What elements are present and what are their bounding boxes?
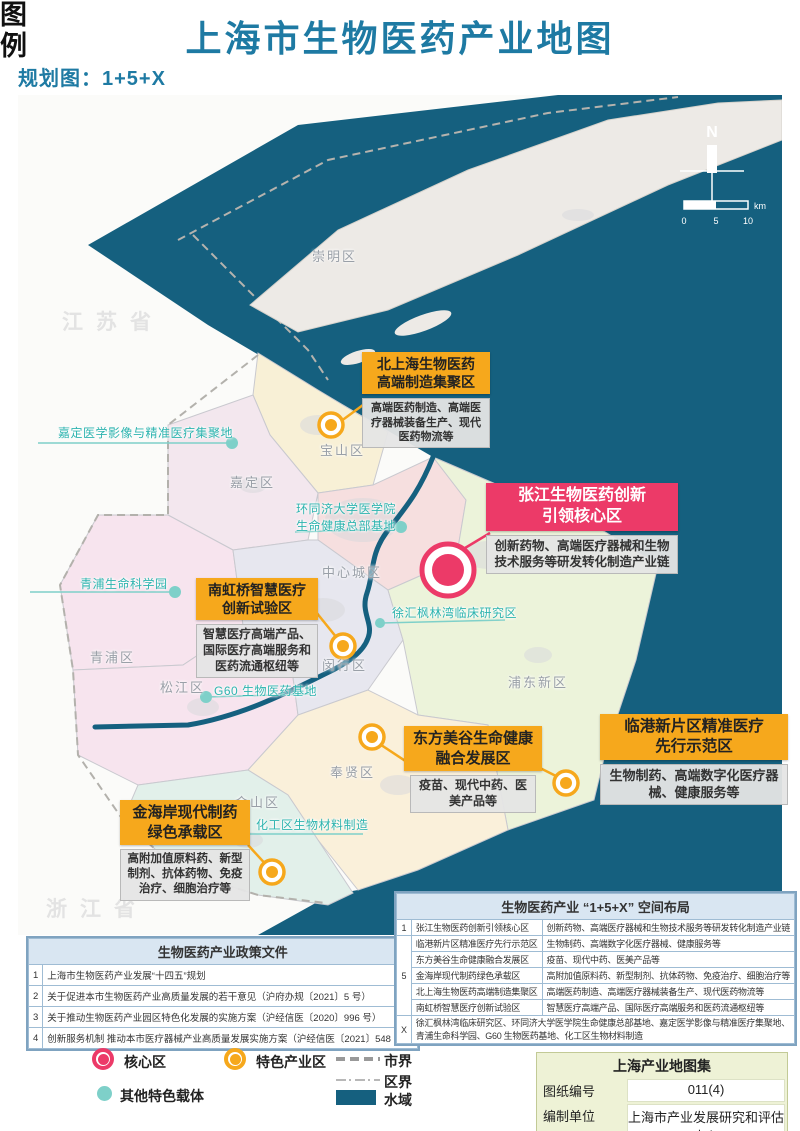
callout-lingang: 临港新片区精准医疗先行示范区 生物制药、高端数字化医疗器械、健康服务等 [600, 714, 788, 805]
district-label-chongming: 崇明区 [312, 246, 357, 265]
callout-beishanghai-title: 北上海生物医药高端制造集聚区 [362, 352, 490, 394]
legend-water-label: 水域 [384, 1090, 412, 1110]
callout-dongfangmeigu-title: 东方美谷生命健康融合发展区 [404, 726, 542, 771]
callout-beishanghai-desc: 高端医药制造、高端医疗器械装备生产、现代医药物流等 [362, 398, 490, 448]
table-row: 南虹桥智慧医疗创新试验区智慧医疗高端产品、国际医疗高端服务和医药流通枢纽等 [397, 1000, 795, 1016]
marker-feature-dongfangmeigu [360, 725, 384, 749]
callout-nanhongqiao-desc: 智慧医疗高端产品、国际医疗高端服务和医药流通枢纽等 [196, 624, 318, 677]
svg-text:N: N [706, 124, 718, 141]
atlas-title: 上海产业地图集 [537, 1053, 787, 1079]
table-row: 5 临港新片区精准医疗先行示范区 生物制药、高端数字化医疗器械、健康服务等 [397, 936, 795, 952]
carrier-label-xuhui-fenglinwan: 徐汇枫林湾临床研究区 [392, 604, 517, 621]
policy-table-title: 生物医药产业政策文件 [29, 939, 418, 965]
marker-core-zhangjiang [422, 544, 474, 596]
table-row: 1上海市生物医药产业发展“十四五”规划 [29, 965, 418, 986]
table-row: 北上海生物医药高端制造集聚区高端医药制造、高端医疗器械装备生产、现代医药物流等 [397, 984, 795, 1000]
page-title: 上海市生物医药产业地图 [0, 10, 800, 62]
svg-text:10: 10 [743, 216, 753, 226]
table-row: 4创新服务机制 推动本市医疗器械产业高质量发展实施方案（沪经信医〔2021〕54… [29, 1028, 418, 1049]
carrier-label-jiading-imaging: 嘉定医学影像与精准医疗集聚地 [58, 424, 233, 441]
table-row: X 徐汇枫林湾临床研究区、环同济大学医学院生命健康总部基地、嘉定医学影像与精准医… [397, 1016, 795, 1044]
legend-feature-icon [224, 1048, 246, 1070]
legend-other-icon [97, 1086, 112, 1101]
svg-text:5: 5 [713, 216, 718, 226]
plan-subtitle: 规划图：1+5+X [18, 62, 166, 91]
callout-jinhaian: 金海岸现代制药绿色承载区 高附加值原料药、新型制剂、抗体药物、免疫治疗、细胞治疗… [120, 800, 250, 901]
legend-district-border-label: 区界 [384, 1072, 412, 1092]
table-row: 东方美谷生命健康融合发展区疫苗、现代中药、医美产品等 [397, 952, 795, 968]
callout-zhangjiang-desc: 创新药物、高端医疗器械和生物技术服务等研发转化制造产业链 [486, 535, 678, 574]
dot-tongji [395, 521, 407, 533]
legend-feature-label: 特色产业区 [256, 1052, 326, 1072]
layout-table: 生物医药产业 “1+5+X” 空间布局 1 张江生物医药创新引领核心区 创新药物… [396, 893, 795, 1044]
svg-text:0: 0 [681, 216, 686, 226]
atlas-row-number: 图纸编号 011(4) [539, 1079, 785, 1102]
legend-core-icon [92, 1048, 114, 1070]
marker-feature-jinhaian [260, 860, 284, 884]
marker-feature-beishanghai [319, 413, 343, 437]
legend-other-label: 其他特色载体 [120, 1086, 204, 1106]
district-label-central-city: 中心城区 [322, 562, 382, 581]
callout-zhangjiang-title: 张江生物医药创新引领核心区 [486, 483, 678, 531]
legend-water-icon [336, 1090, 376, 1105]
callout-jinhaian-title: 金海岸现代制药绿色承载区 [120, 800, 250, 845]
marker-feature-lingang [554, 771, 578, 795]
dot-qingpu-lifescience [169, 586, 181, 598]
atlas-info-box: 上海产业地图集 图纸编号 011(4) 编制单位 上海市产业发展研究和评估中心 [536, 1052, 788, 1131]
callout-nanhongqiao: 南虹桥智慧医疗创新试验区 智慧医疗高端产品、国际医疗高端服务和医药流通枢纽等 [196, 578, 318, 678]
callout-beishanghai: 北上海生物医药高端制造集聚区 高端医药制造、高端医疗器械装备生产、现代医药物流等 [362, 352, 490, 448]
district-label-pudong: 浦东新区 [508, 672, 568, 691]
callout-lingang-desc: 生物制药、高端数字化医疗器械、健康服务等 [600, 764, 788, 804]
district-label-minhang: 闵行区 [322, 655, 367, 674]
district-label-baoshan: 宝山区 [320, 440, 365, 459]
dot-xuhui-fenglinwan [375, 618, 385, 628]
atlas-number-label: 图纸编号 [539, 1079, 627, 1102]
callout-dongfangmeigu: 东方美谷生命健康融合发展区 疫苗、现代中药、医美产品等 [404, 726, 542, 813]
callout-lingang-title: 临港新片区精准医疗先行示范区 [600, 714, 788, 760]
legend-district-border-icon [336, 1079, 380, 1081]
legend-city-border-icon [336, 1057, 380, 1061]
layout-table-title: 生物医药产业 “1+5+X” 空间布局 [397, 894, 795, 920]
carrier-label-g60: G60 生物医药基地 [214, 682, 317, 699]
callout-nanhongqiao-title: 南虹桥智慧医疗创新试验区 [196, 578, 318, 620]
callout-dongfangmeigu-desc: 疫苗、现代中药、医美产品等 [410, 775, 536, 813]
policy-table: 生物医药产业政策文件 1上海市生物医药产业发展“十四五”规划 2关于促进本市生物… [28, 938, 418, 1049]
carrier-label-tongji: 环同济大学医学院生命健康总部基地 [296, 500, 396, 534]
legend-core-label: 核心区 [124, 1052, 166, 1072]
callout-jinhaian-desc: 高附加值原料药、新型制剂、抗体药物、免疫治疗、细胞治疗等 [120, 849, 250, 901]
poster-page: 上海市生物医药产业地图 规划图：1+5+X [0, 0, 800, 1131]
district-label-qingpu: 青浦区 [90, 647, 135, 666]
carrier-label-chemical-park: 化工区生物材料制造 [256, 816, 369, 833]
atlas-row-publisher: 编制单位 上海市产业发展研究和评估中心 [539, 1104, 785, 1131]
table-row: 3关于推动生物医药产业园区特色化发展的实施方案（沪经信医〔2020〕996 号） [29, 1007, 418, 1028]
legend-city-border-label: 市界 [384, 1051, 412, 1071]
atlas-publisher-label: 编制单位 [539, 1104, 627, 1131]
atlas-number-value: 011(4) [627, 1079, 785, 1102]
province-label-jiangsu: 江苏省 [62, 306, 164, 336]
table-row: 2关于促进本市生物医药产业高质量发展的若干意见（沪府办规〔2021〕5 号） [29, 986, 418, 1007]
district-label-songjiang: 松江区 [160, 677, 205, 696]
district-label-jiading: 嘉定区 [230, 472, 275, 491]
table-row: 金海岸现代制药绿色承载区高附加值原料药、新型制剂、抗体药物、免疫治疗、细胞治疗等 [397, 968, 795, 984]
district-label-fengxian: 奉贤区 [330, 762, 375, 781]
callout-zhangjiang: 张江生物医药创新引领核心区 创新药物、高端医疗器械和生物技术服务等研发转化制造产… [486, 483, 678, 574]
table-row: 1 张江生物医药创新引领核心区 创新药物、高端医疗器械和生物技术服务等研发转化制… [397, 920, 795, 936]
carrier-label-qingpu-lifescience: 青浦生命科学园 [80, 575, 168, 592]
atlas-publisher-value: 上海市产业发展研究和评估中心 [627, 1104, 785, 1131]
svg-text:km: km [754, 201, 766, 211]
